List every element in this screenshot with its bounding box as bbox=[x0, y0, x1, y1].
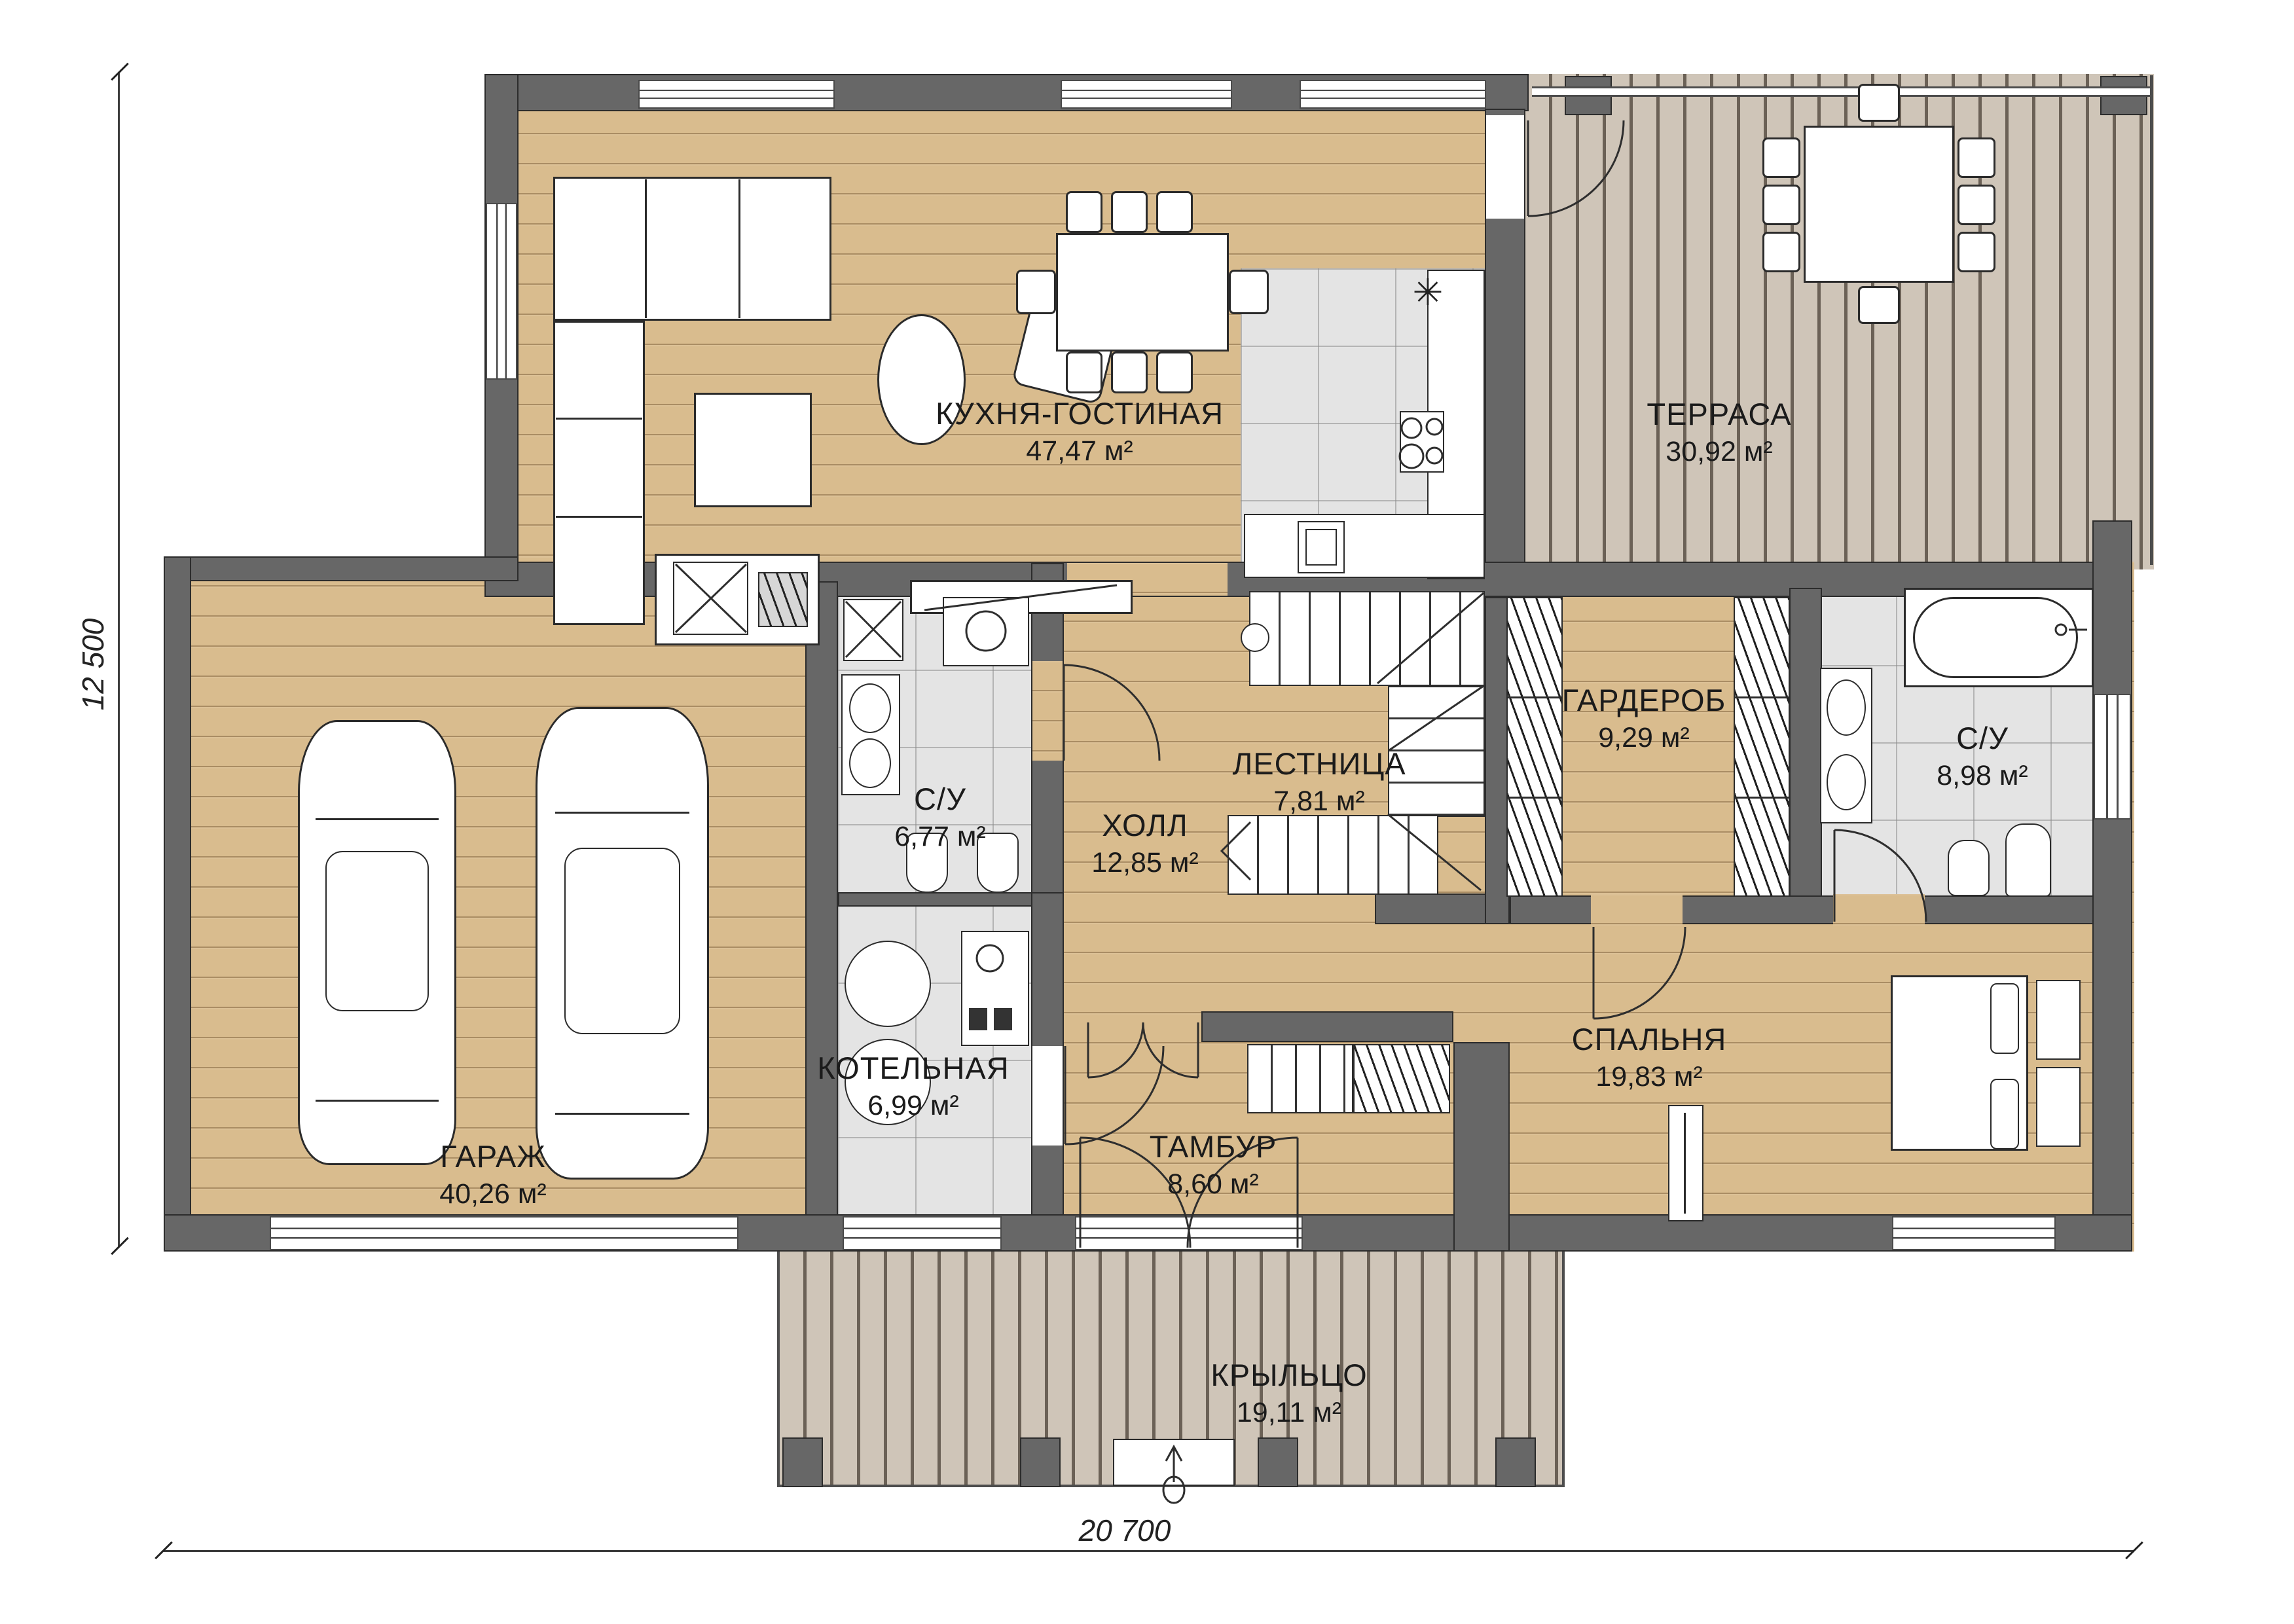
dimension-line-bottom bbox=[164, 1550, 2134, 1552]
pillow bbox=[1990, 983, 2019, 1054]
room-area: 30,92 м² bbox=[1647, 433, 1791, 470]
terrace-chair bbox=[1858, 84, 1900, 122]
room-label-terrace: ТЕРРАСА 30,92 м² bbox=[1647, 395, 1791, 470]
porch-steps bbox=[1113, 1439, 1235, 1486]
sink-oval bbox=[849, 683, 891, 733]
dining-chair bbox=[1229, 270, 1269, 314]
room-area: 40,26 м² bbox=[439, 1176, 546, 1212]
terrace-chair bbox=[1957, 137, 1995, 178]
dimension-height-label: 12 500 bbox=[75, 619, 111, 711]
kitchen-island-inner bbox=[1305, 529, 1337, 566]
garage-gate bbox=[270, 1216, 738, 1250]
dimension-line-left bbox=[118, 72, 120, 1247]
boiler-unit-switch bbox=[969, 1008, 987, 1030]
car-2-trunk-line bbox=[555, 1113, 689, 1115]
sink-oval bbox=[849, 738, 891, 788]
wall-garage-bath1 bbox=[805, 581, 838, 1252]
floor-plan: ✳ bbox=[0, 0, 2294, 1624]
sofa-cushion-line bbox=[738, 179, 740, 318]
sofa-corner-vertical bbox=[553, 321, 645, 625]
closet-shelving-west bbox=[1506, 597, 1563, 897]
room-name: ТАМБУР bbox=[1150, 1128, 1277, 1166]
wall-vestibule-east bbox=[1453, 1042, 1510, 1252]
dining-chair bbox=[1111, 191, 1148, 233]
room-label-wardrobe: ГАРДЕРОБ 9,29 м² bbox=[1562, 681, 1726, 756]
window-bedroom bbox=[1892, 1216, 2056, 1250]
room-area: 19,11 м² bbox=[1211, 1394, 1367, 1431]
window-north-1 bbox=[638, 80, 835, 109]
terrace-door-opening bbox=[1486, 115, 1524, 219]
room-name: ГАРАЖ bbox=[439, 1138, 546, 1176]
stair-flight-upper bbox=[1249, 591, 1485, 686]
room-area: 8,98 м² bbox=[1937, 757, 2028, 794]
kitchen-counter-south bbox=[1244, 514, 1485, 578]
dimension-tick bbox=[111, 1237, 129, 1255]
terrace-chair bbox=[1762, 185, 1800, 225]
room-label-kitchen-living: КУХНЯ-ГОСТИНАЯ 47,47 м² bbox=[936, 395, 1224, 469]
room-area: 6,77 м² bbox=[894, 818, 986, 855]
window-north-2 bbox=[1061, 80, 1232, 109]
porch-column bbox=[782, 1437, 823, 1487]
room-label-staircase: ЛЕСТНИЦА 7,81 м² bbox=[1232, 745, 1406, 820]
sofa-cushion-line bbox=[556, 516, 642, 518]
wall-east bbox=[2092, 520, 2132, 1252]
fireplace-firebox bbox=[673, 562, 748, 635]
dimension-tick bbox=[111, 63, 129, 81]
wall-bath1-boiler bbox=[838, 892, 1032, 907]
room-label-garage: ГАРАЖ 40,26 м² bbox=[439, 1138, 546, 1212]
dining-chair bbox=[1156, 352, 1193, 393]
stove bbox=[1400, 411, 1444, 473]
door-opening-boiler bbox=[1032, 1046, 1063, 1146]
sink-oval bbox=[1827, 754, 1866, 810]
washing-machine bbox=[843, 599, 903, 661]
dining-chair bbox=[1066, 191, 1102, 233]
room-label-bedroom: СПАЛЬНЯ 19,83 м² bbox=[1572, 1020, 1727, 1095]
utility-sink-unit bbox=[943, 597, 1029, 666]
door-opening-bathroom-1 bbox=[1032, 661, 1063, 761]
kitchen-sink-icon: ✳ bbox=[1405, 270, 1451, 316]
wall-garage-west bbox=[164, 556, 191, 1252]
entrance-door-opening bbox=[1075, 1216, 1303, 1250]
room-name: ТЕРРАСА bbox=[1647, 395, 1791, 433]
boiler-exterior-door bbox=[843, 1216, 1002, 1250]
bidet bbox=[1948, 840, 1990, 896]
porch-column bbox=[1258, 1437, 1298, 1487]
closet-shelving-east bbox=[1734, 597, 1790, 897]
dresser bbox=[1668, 1105, 1703, 1221]
room-area: 8,60 м² bbox=[1150, 1166, 1277, 1202]
dining-chair bbox=[1156, 191, 1193, 233]
room-label-vestibule: ТАМБУР 8,60 м² bbox=[1150, 1128, 1277, 1202]
fireplace-hearth bbox=[758, 572, 808, 627]
terrace-chair bbox=[1762, 137, 1800, 178]
room-label-bathroom-1: С/У 6,77 м² bbox=[894, 780, 986, 855]
room-label-porch: КРЫЛЬЦО 19,11 м² bbox=[1211, 1356, 1367, 1431]
shoe-rack bbox=[1353, 1044, 1450, 1113]
room-name: ХОЛЛ bbox=[1091, 806, 1198, 844]
room-name: КРЫЛЬЦО bbox=[1211, 1356, 1367, 1394]
room-name: С/У bbox=[1937, 719, 2028, 757]
porch-column bbox=[1020, 1437, 1061, 1487]
room-name: КУХНЯ-ГОСТИНАЯ bbox=[936, 395, 1224, 433]
nightstand bbox=[2036, 1067, 2081, 1147]
car-1-roof bbox=[325, 851, 429, 1011]
dining-table bbox=[1056, 233, 1229, 352]
room-area: 47,47 м² bbox=[936, 433, 1224, 469]
dining-chair bbox=[1016, 270, 1056, 314]
terrace-edge-east bbox=[2150, 75, 2153, 565]
porch-column bbox=[1495, 1437, 1536, 1487]
terrace-chair bbox=[1957, 185, 1995, 225]
room-area: 7,81 м² bbox=[1232, 783, 1406, 820]
wall-vestibule-top bbox=[1201, 1011, 1453, 1042]
terrace-chair bbox=[1762, 232, 1800, 272]
terrace-table bbox=[1804, 126, 1954, 283]
sofa-cushion-line bbox=[645, 179, 647, 318]
room-name: С/У bbox=[894, 780, 986, 818]
car-2-roof bbox=[564, 848, 680, 1034]
coat-bench bbox=[1247, 1044, 1353, 1113]
room-name: СПАЛЬНЯ bbox=[1572, 1020, 1727, 1058]
boiler-unit-switch bbox=[994, 1008, 1012, 1030]
sofa-corner-horizontal bbox=[553, 177, 831, 321]
dimension-width-label: 20 700 bbox=[1079, 1513, 1171, 1548]
terrace-chair bbox=[1858, 286, 1900, 324]
window-west-living bbox=[486, 203, 517, 380]
sofa-cushion-line bbox=[556, 418, 642, 420]
door-opening-bathroom-2 bbox=[1833, 894, 1925, 926]
boiler-tank bbox=[845, 941, 931, 1027]
room-area: 19,83 м² bbox=[1572, 1058, 1727, 1095]
room-name: ЛЕСТНИЦА bbox=[1232, 745, 1406, 783]
room-name: ГАРДЕРОБ bbox=[1562, 681, 1726, 719]
room-label-hall: ХОЛЛ 12,85 м² bbox=[1091, 806, 1198, 881]
room-label-bathroom-2: С/У 8,98 м² bbox=[1937, 719, 2028, 794]
dresser-line bbox=[1684, 1113, 1686, 1214]
sink-oval bbox=[1827, 679, 1866, 736]
stair-flight-lower bbox=[1228, 815, 1438, 895]
car-1-trunk-line bbox=[316, 1100, 439, 1102]
stair-newel bbox=[1241, 623, 1269, 652]
window-north-3 bbox=[1300, 80, 1486, 109]
window-bathroom-2 bbox=[2094, 694, 2131, 820]
coffee-table bbox=[694, 393, 812, 507]
terrace-chair bbox=[1957, 232, 1995, 272]
terrace-railing bbox=[1532, 86, 2151, 97]
room-name: КОТЕЛЬНАЯ bbox=[817, 1049, 1009, 1087]
room-area: 12,85 м² bbox=[1091, 844, 1198, 881]
wall-stairs-south bbox=[1375, 893, 1486, 924]
door-opening-wardrobe bbox=[1591, 894, 1683, 926]
car-1-hood-line bbox=[316, 818, 439, 820]
nightstand bbox=[2036, 980, 2081, 1060]
wall-garage-top bbox=[164, 556, 519, 581]
dining-chair bbox=[1066, 352, 1102, 393]
toilet bbox=[2005, 823, 2051, 897]
car-2-hood-line bbox=[555, 812, 689, 814]
pillow bbox=[1990, 1079, 2019, 1149]
dining-chair bbox=[1111, 352, 1148, 393]
room-area: 9,29 м² bbox=[1562, 719, 1726, 756]
bathtub-inner bbox=[1913, 597, 2078, 678]
room-area: 6,99 м² bbox=[817, 1087, 1009, 1124]
wall-wardrobe-bath2 bbox=[1789, 588, 1822, 897]
room-label-boiler-room: КОТЕЛЬНАЯ 6,99 м² bbox=[817, 1049, 1009, 1124]
